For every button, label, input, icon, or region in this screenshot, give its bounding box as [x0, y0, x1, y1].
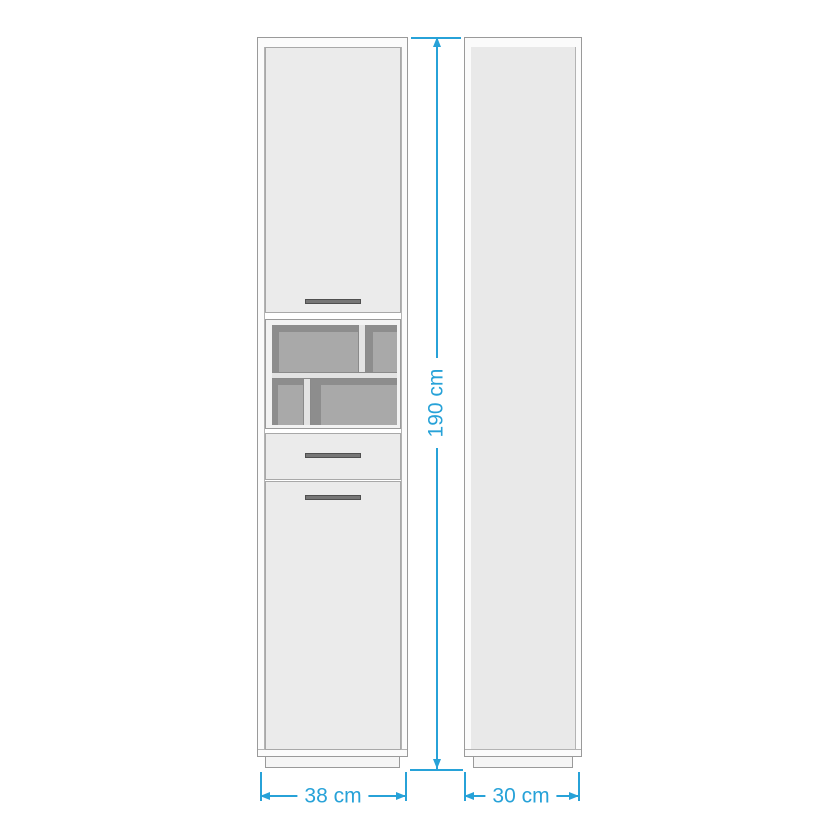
upper-door-handle [305, 299, 361, 304]
front-left-side-panel [258, 47, 265, 750]
open-shelf-compartment [265, 319, 401, 429]
shelf-back-panel [373, 332, 397, 372]
front-bottom-panel [258, 749, 407, 756]
side-depth-label: 30 cm [485, 784, 556, 809]
shelf-horizontal-divider [272, 372, 397, 379]
side-back-edge [575, 47, 581, 750]
cabinet-front-view [257, 37, 408, 757]
shelf-back-panel [278, 385, 303, 425]
upper-door [265, 47, 401, 313]
side-bottom-panel [465, 749, 581, 756]
arrow-right-icon [569, 792, 579, 800]
arrow-down-icon [433, 759, 441, 769]
open-shelf-interior [272, 325, 397, 425]
shelf-row-upper [272, 325, 397, 372]
drawer [265, 433, 401, 480]
height-extension-line-bottom [410, 769, 463, 771]
shelf-back-panel [321, 385, 397, 425]
arrow-left-icon [464, 792, 474, 800]
shelf-vertical-divider-upper [358, 325, 366, 372]
lower-door [265, 481, 401, 750]
height-dimension-label: 190 cm [426, 369, 447, 438]
arrow-right-icon [396, 792, 406, 800]
shelf-vertical-divider-lower [303, 379, 311, 425]
arrow-left-icon [260, 792, 270, 800]
product-dimension-diagram: 190 cm 38 cm 30 cm [0, 0, 840, 840]
front-right-side-panel [401, 47, 407, 750]
side-plinth [473, 756, 573, 768]
front-width-label: 38 cm [297, 784, 368, 809]
shelf-row-lower [272, 379, 397, 425]
height-dimension-line-lower [436, 448, 438, 769]
height-dimension-line-upper [436, 38, 438, 358]
front-plinth [265, 756, 400, 768]
lower-door-handle [305, 495, 361, 500]
drawer-handle [305, 453, 361, 458]
front-view-content [265, 47, 401, 750]
side-view-body [471, 47, 575, 749]
cabinet-side-view [464, 37, 582, 757]
shelf-back-panel [279, 332, 358, 372]
arrow-up-icon [433, 37, 441, 47]
